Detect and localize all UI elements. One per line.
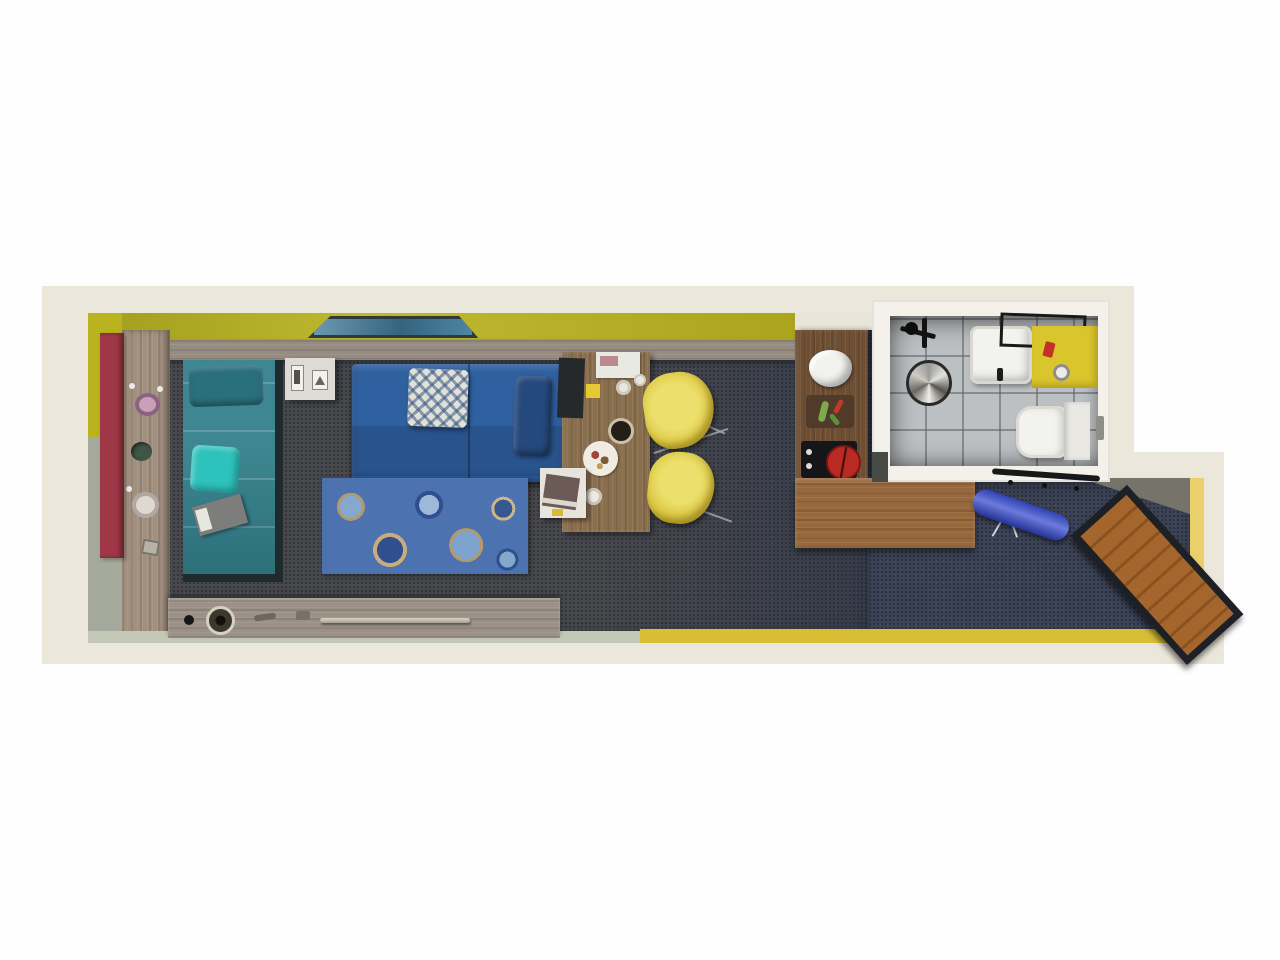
single-bed-teal bbox=[183, 360, 283, 582]
sofa-daybed-blue bbox=[352, 364, 563, 482]
wall-painting bbox=[306, 316, 480, 338]
book-spine bbox=[195, 507, 213, 531]
navy-bolster-cushion bbox=[513, 375, 553, 456]
kitchen-back-wall-sliver bbox=[795, 313, 872, 330]
coat-hook-1 bbox=[1008, 480, 1013, 485]
console-rail-handle bbox=[320, 618, 470, 623]
decor-bowl-white bbox=[132, 492, 159, 518]
console-knob-small bbox=[184, 615, 194, 625]
cutting-board bbox=[806, 395, 854, 428]
console-knob-large bbox=[206, 606, 235, 635]
wall-painting-art bbox=[314, 319, 472, 335]
shower-head bbox=[906, 360, 952, 406]
red-pot bbox=[826, 445, 861, 480]
sink-faucet bbox=[997, 368, 1003, 381]
toiletry-jar bbox=[1053, 364, 1070, 381]
breakfast-plate bbox=[583, 441, 618, 476]
side-table bbox=[540, 468, 586, 518]
decor-flower-dot-3 bbox=[126, 486, 132, 492]
book-pages-edge bbox=[542, 498, 576, 508]
decor-flower-dot-1 bbox=[129, 383, 135, 389]
paper-accent bbox=[600, 356, 618, 366]
red-chili bbox=[833, 399, 844, 415]
white-cup bbox=[585, 488, 602, 505]
book-on-bed bbox=[192, 494, 248, 537]
toilet-cistern bbox=[1064, 402, 1090, 460]
desk-papers bbox=[596, 352, 640, 378]
coat-hook-2 bbox=[1042, 483, 1047, 488]
console-bracket bbox=[296, 611, 310, 620]
shower-mixer-pipe bbox=[922, 318, 927, 348]
console-toggle bbox=[254, 612, 277, 621]
decor-plant-green bbox=[131, 442, 152, 461]
shower-mixer-knob bbox=[905, 322, 918, 335]
coffee-cup bbox=[608, 418, 634, 444]
decor-metal-box bbox=[141, 539, 160, 557]
accent-cushion-teal bbox=[189, 444, 240, 493]
console-sideboard bbox=[168, 598, 560, 638]
sticky-note-yellow bbox=[586, 384, 600, 398]
cucumber bbox=[818, 400, 830, 422]
print-art-mark-1 bbox=[294, 370, 300, 384]
nightstand bbox=[285, 358, 335, 400]
print-art-mark-2 bbox=[315, 376, 325, 385]
headboard-plank-strip bbox=[150, 339, 795, 360]
bathroom-doorway-gap bbox=[872, 452, 888, 482]
small-plate-1 bbox=[616, 380, 631, 395]
small-plate-2 bbox=[634, 374, 646, 386]
decor-flower-dot-2 bbox=[157, 386, 163, 392]
decor-vase-pink bbox=[135, 393, 160, 416]
cooktop-dot-2 bbox=[806, 463, 812, 469]
book-on-table bbox=[542, 474, 580, 510]
diamond-pattern-pillow bbox=[407, 368, 469, 428]
framed-print-1 bbox=[291, 365, 304, 391]
yellow-bookmark bbox=[552, 509, 563, 516]
green-herb bbox=[829, 413, 841, 426]
toilet-bowl bbox=[1016, 406, 1068, 458]
circle-pattern-rug bbox=[322, 478, 528, 574]
laptop bbox=[557, 358, 585, 419]
framed-print-2 bbox=[312, 370, 328, 390]
entry-door-red bbox=[100, 333, 124, 558]
bed-pillow bbox=[188, 365, 263, 408]
kitchen-counter-horizontal bbox=[795, 478, 975, 548]
cooktop-dot-1 bbox=[806, 449, 812, 455]
coat-hook-3 bbox=[1074, 486, 1079, 491]
bathroom-door-handle bbox=[1096, 416, 1104, 440]
floorplan-canvas bbox=[0, 0, 1280, 960]
yellow-wall-bottom bbox=[640, 629, 1202, 643]
